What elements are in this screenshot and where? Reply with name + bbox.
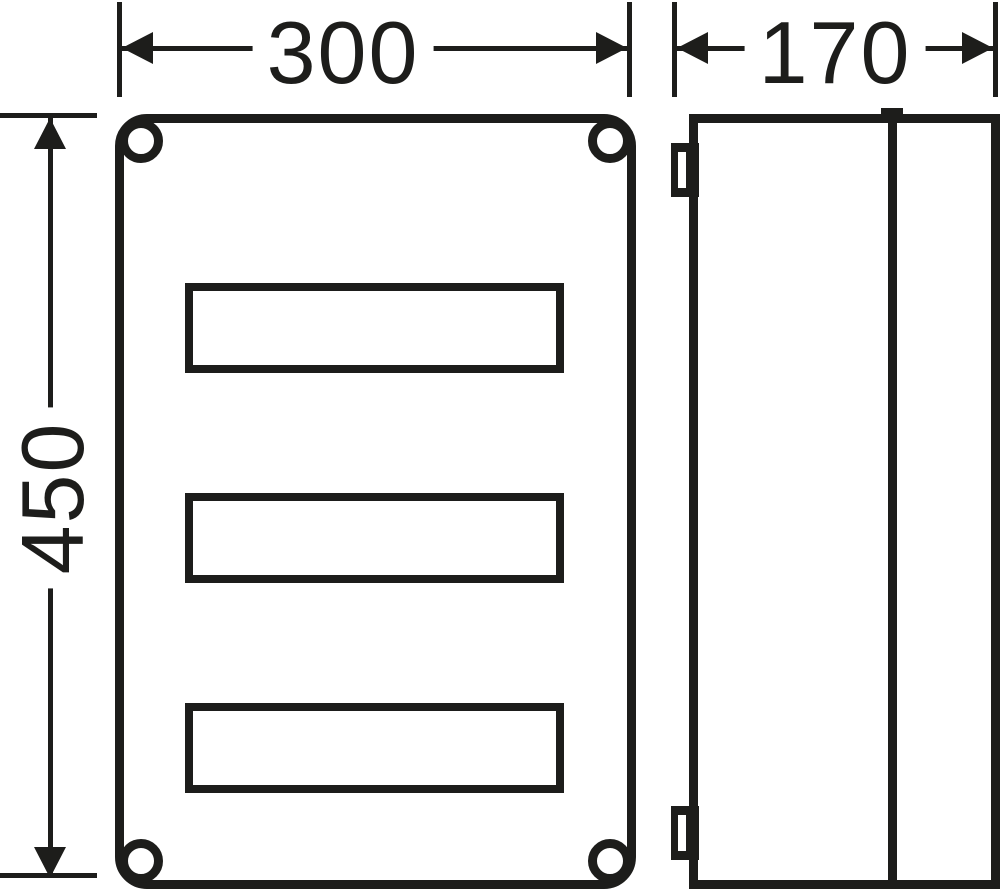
corner-screw-hole: [588, 119, 632, 163]
arrowhead-left-icon: [677, 32, 708, 64]
din-rail-cutout: [185, 493, 564, 583]
extension-line: [627, 2, 632, 97]
corner-screw-hole: [119, 119, 163, 163]
wall-mount-tab: [671, 143, 699, 197]
wall-mount-tab-slot: [678, 815, 686, 851]
enclosure-side-outline: [689, 114, 1000, 889]
din-rail-cutout: [185, 283, 564, 373]
arrowhead-down-icon: [34, 847, 66, 878]
technical-drawing: 300 170 450: [0, 0, 1000, 889]
corner-screw-hole: [588, 839, 632, 883]
wall-mount-tab: [671, 806, 699, 860]
cover-seam-notch: [881, 108, 903, 116]
arrowhead-up-icon: [34, 118, 66, 149]
arrowhead-left-icon: [122, 32, 153, 64]
corner-screw-hole: [119, 839, 163, 883]
arrowhead-right-icon: [962, 32, 993, 64]
width-dimension-label: 300: [253, 9, 434, 97]
wall-mount-tab-slot: [678, 152, 686, 188]
din-rail-cutout: [185, 703, 564, 793]
arrowhead-right-icon: [596, 32, 627, 64]
height-dimension-label: 450: [9, 408, 97, 589]
extension-line: [993, 2, 998, 97]
depth-dimension-label: 170: [745, 9, 926, 97]
cover-seam-line: [888, 114, 897, 889]
